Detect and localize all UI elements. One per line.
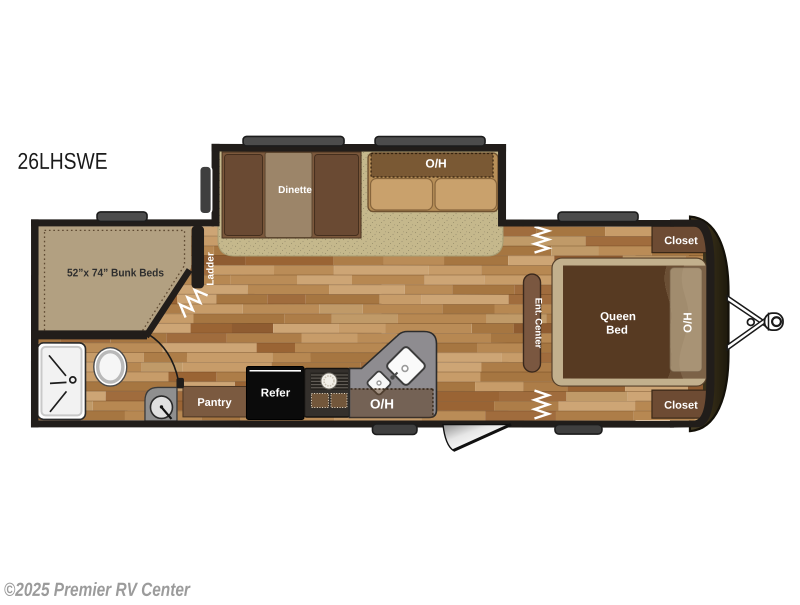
svg-text:©2025 Premier RV Center: ©2025 Premier RV Center [4,580,191,600]
svg-text:O/H: O/H [370,396,394,411]
svg-text:52”x 74” Bunk Beds: 52”x 74” Bunk Beds [67,267,164,279]
svg-text:Closet: Closet [664,235,698,247]
svg-text:O/H: O/H [682,312,694,332]
svg-text:Queen: Queen [600,311,636,323]
svg-text:Bed: Bed [606,325,628,337]
svg-text:O/H: O/H [425,157,446,171]
svg-text:Refer: Refer [261,387,291,399]
svg-text:Dinette: Dinette [278,185,312,196]
svg-text:Pantry: Pantry [197,397,232,409]
svg-text:Closet: Closet [664,400,698,412]
svg-text:Ent. Center: Ent. Center [532,298,543,349]
svg-text:Ladder: Ladder [206,252,217,285]
svg-text:26LHSWE: 26LHSWE [18,148,108,174]
